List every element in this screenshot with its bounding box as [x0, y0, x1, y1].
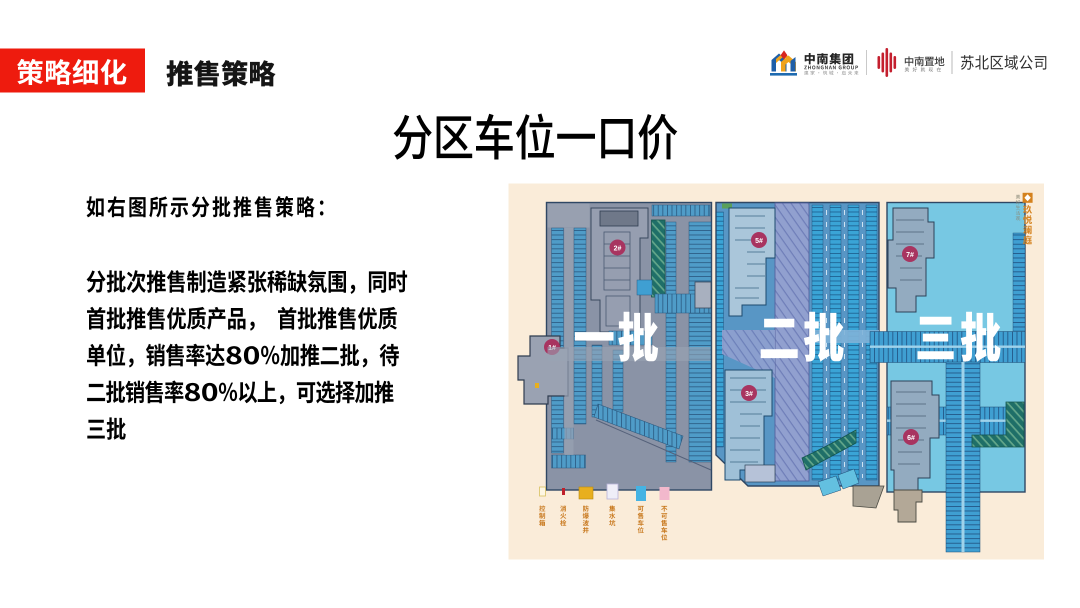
svg-text:3#: 3#	[745, 391, 753, 398]
svg-text:7#: 7#	[906, 252, 914, 259]
svg-text:5#: 5#	[755, 238, 763, 245]
svg-text:2#: 2#	[614, 246, 622, 253]
svg-text:6#: 6#	[907, 435, 915, 442]
